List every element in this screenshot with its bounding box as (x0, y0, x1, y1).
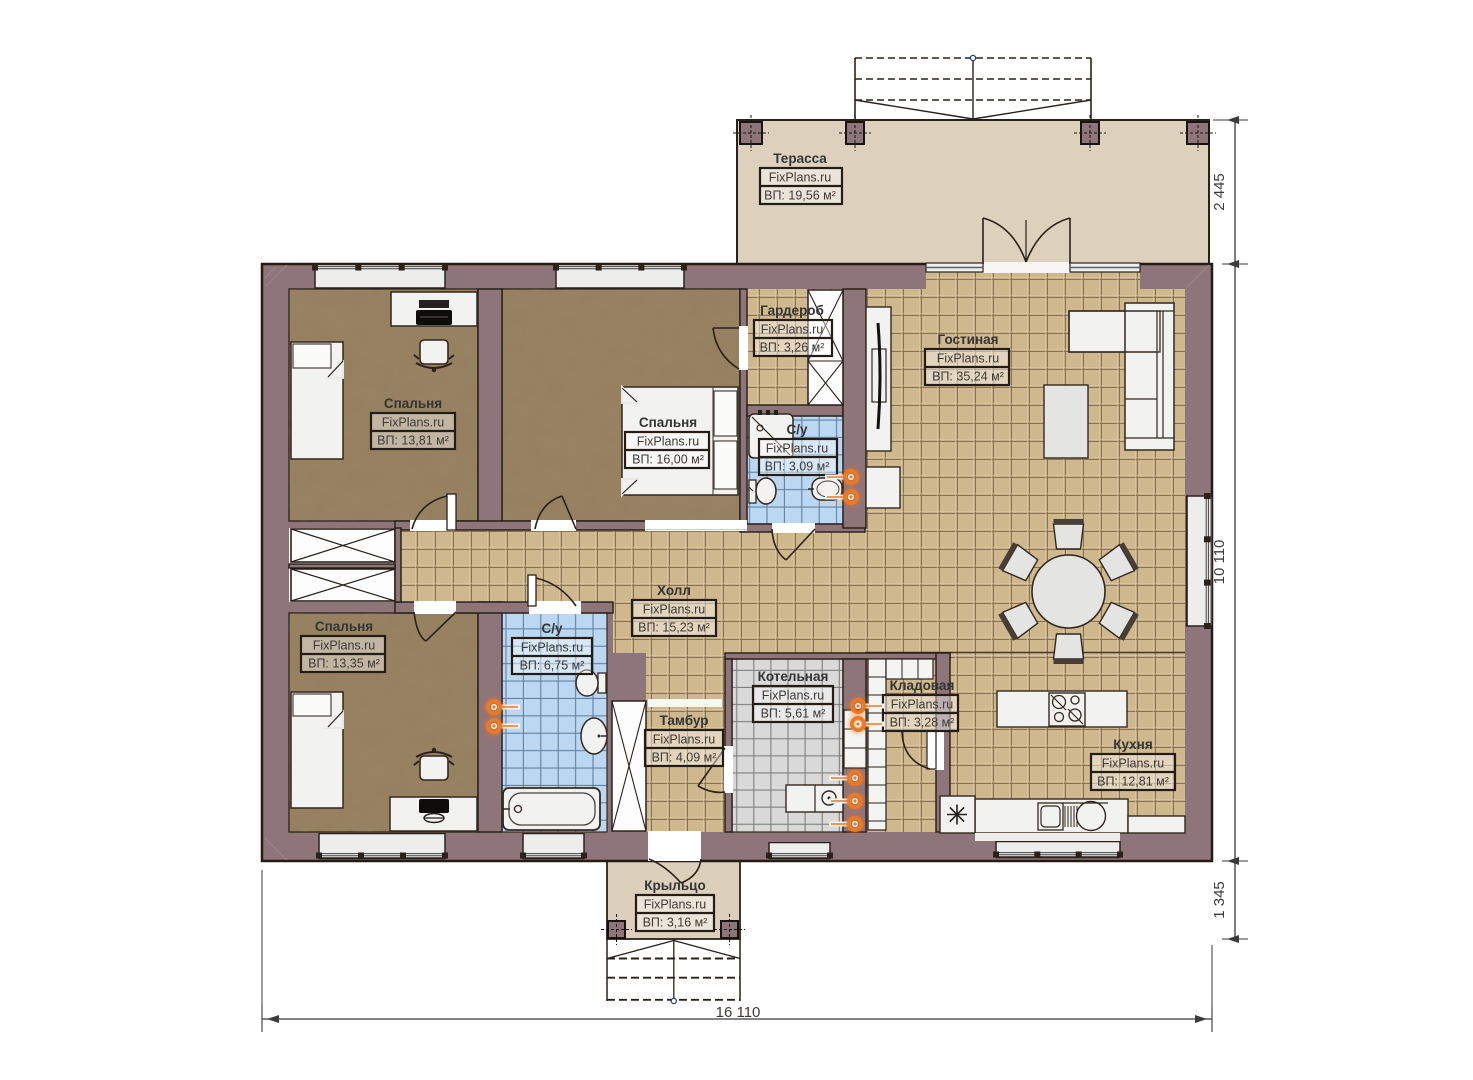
svg-text:ВП: 3,28 м²: ВП: 3,28 м² (890, 716, 955, 730)
svg-text:Спальня: Спальня (639, 415, 697, 430)
svg-text:FixPlans.ru: FixPlans.ru (313, 639, 376, 653)
svg-text:FixPlans.ru: FixPlans.ru (769, 171, 832, 185)
svg-text:FixPlans.ru: FixPlans.ru (521, 641, 584, 655)
svg-text:Тамбур: Тамбур (660, 713, 709, 728)
svg-text:ВП: 6,75 м²: ВП: 6,75 м² (520, 659, 585, 673)
svg-text:ВП: 3,26 м²: ВП: 3,26 м² (760, 341, 825, 355)
svg-text:2 445: 2 445 (1211, 173, 1228, 211)
svg-text:ВП: 12,81 м²: ВП: 12,81 м² (1097, 775, 1169, 789)
svg-text:ВП: 15,23 м²: ВП: 15,23 м² (638, 621, 710, 635)
svg-text:FixPlans.ru: FixPlans.ru (382, 416, 445, 430)
svg-text:ВП: 5,61 м²: ВП: 5,61 м² (761, 707, 826, 721)
svg-text:FixPlans.ru: FixPlans.ru (891, 698, 954, 712)
svg-text:Спальня: Спальня (384, 396, 442, 411)
svg-text:Гостиная: Гостиная (937, 332, 998, 347)
svg-text:FixPlans.ru: FixPlans.ru (762, 689, 825, 703)
svg-text:ВП: 3,16 м²: ВП: 3,16 м² (643, 916, 708, 930)
svg-text:ВП: 16,00 м²: ВП: 16,00 м² (632, 453, 704, 467)
svg-text:Крыльцо: Крыльцо (644, 878, 705, 893)
svg-text:FixPlans.ru: FixPlans.ru (766, 442, 829, 456)
svg-text:FixPlans.ru: FixPlans.ru (761, 323, 824, 337)
svg-text:Терасса: Терасса (773, 151, 827, 166)
svg-text:ВП: 13,35 м²: ВП: 13,35 м² (308, 657, 380, 671)
svg-text:1 345: 1 345 (1211, 881, 1228, 919)
svg-text:Кладовая: Кладовая (890, 678, 955, 693)
svg-text:ВП: 35,24 м²: ВП: 35,24 м² (932, 370, 1004, 384)
svg-text:ВП: 3,09 м²: ВП: 3,09 м² (765, 460, 830, 474)
svg-text:FixPlans.ru: FixPlans.ru (1102, 757, 1165, 771)
svg-text:ВП: 4,09 м²: ВП: 4,09 м² (652, 751, 717, 765)
svg-text:ВП: 13,81 м²: ВП: 13,81 м² (377, 434, 449, 448)
svg-text:FixPlans.ru: FixPlans.ru (643, 603, 706, 617)
svg-text:FixPlans.ru: FixPlans.ru (637, 435, 700, 449)
svg-text:FixPlans.ru: FixPlans.ru (653, 733, 716, 747)
svg-text:FixPlans.ru: FixPlans.ru (937, 352, 1000, 366)
svg-text:ВП: 19,56 м²: ВП: 19,56 м² (764, 189, 836, 203)
svg-text:FixPlans.ru: FixPlans.ru (644, 898, 707, 912)
svg-text:16 110: 16 110 (716, 1004, 761, 1021)
svg-text:10 110: 10 110 (1211, 540, 1228, 585)
svg-text:Кухня: Кухня (1113, 737, 1152, 752)
svg-text:Холл: Холл (657, 583, 691, 598)
svg-text:С/у: С/у (541, 621, 563, 636)
svg-text:Спальня: Спальня (315, 619, 373, 634)
svg-text:С/у: С/у (786, 422, 808, 437)
svg-text:Котельная: Котельная (758, 669, 829, 684)
svg-text:Гардероб: Гардероб (760, 303, 824, 318)
